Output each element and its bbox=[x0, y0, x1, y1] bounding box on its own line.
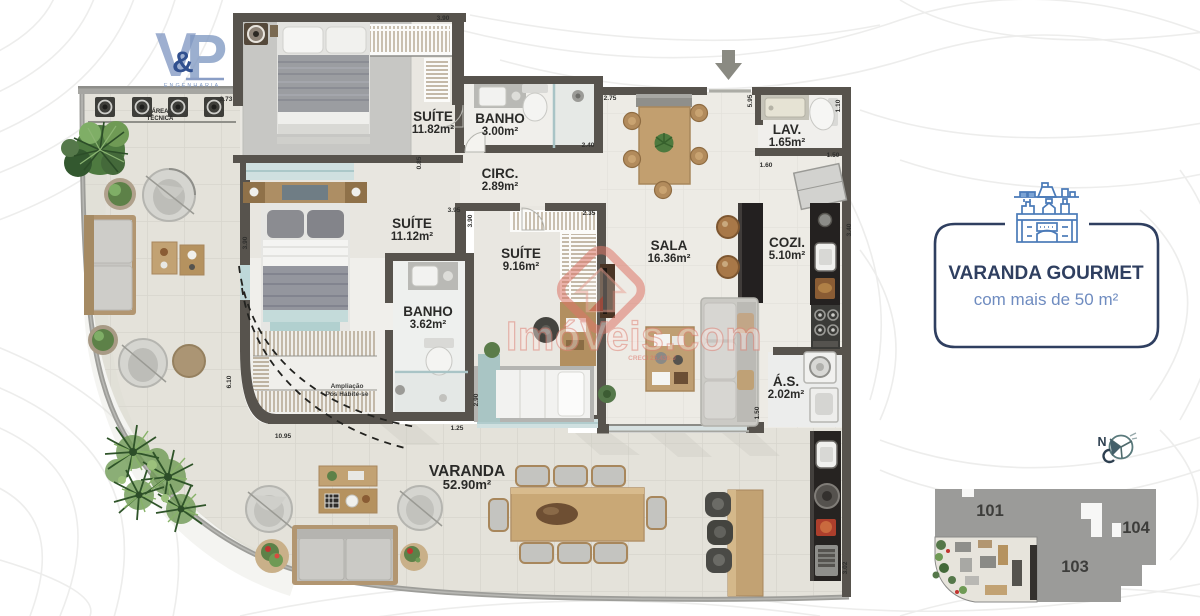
svg-text:5.95: 5.95 bbox=[747, 94, 754, 107]
svg-text:N: N bbox=[1097, 435, 1106, 449]
svg-text:1.25: 1.25 bbox=[451, 425, 464, 432]
svg-text:Ampliação: Ampliação bbox=[331, 383, 364, 390]
svg-text:2.40: 2.40 bbox=[582, 142, 595, 149]
svg-text:TÉCNICA: TÉCNICA bbox=[147, 114, 174, 122]
svg-text:101: 101 bbox=[976, 502, 1004, 520]
svg-text:11.12m²: 11.12m² bbox=[391, 231, 433, 243]
svg-text:SUÍTE: SUÍTE bbox=[413, 109, 453, 124]
svg-text:3.62m²: 3.62m² bbox=[410, 319, 447, 331]
svg-text:ÁREA: ÁREA bbox=[151, 108, 169, 115]
svg-text:Á.S.: Á.S. bbox=[773, 374, 799, 389]
svg-text:BANHO: BANHO bbox=[403, 304, 453, 319]
svg-text:3.02: 3.02 bbox=[842, 561, 849, 574]
svg-text:SUÍTE: SUÍTE bbox=[392, 216, 432, 231]
svg-text:Pós Habite-se: Pós Habite-se bbox=[326, 391, 369, 398]
svg-text:5.10m²: 5.10m² bbox=[769, 250, 806, 262]
svg-text:1.50: 1.50 bbox=[754, 406, 761, 419]
svg-text:103: 103 bbox=[1061, 558, 1089, 576]
svg-text:BANHO: BANHO bbox=[475, 111, 525, 126]
svg-text:2.02m²: 2.02m² bbox=[768, 389, 805, 401]
svg-text:&: & bbox=[172, 46, 194, 79]
svg-text:104: 104 bbox=[1122, 519, 1150, 537]
svg-text:2.90: 2.90 bbox=[473, 393, 480, 406]
svg-text:VARANDA GOURMET: VARANDA GOURMET bbox=[948, 263, 1144, 284]
svg-text:3.90: 3.90 bbox=[467, 214, 474, 227]
svg-text:3.90: 3.90 bbox=[242, 236, 249, 249]
svg-text:1.50: 1.50 bbox=[827, 152, 840, 159]
svg-text:1.65m²: 1.65m² bbox=[769, 137, 806, 149]
svg-text:3.95: 3.95 bbox=[448, 207, 461, 214]
svg-text:16.36m²: 16.36m² bbox=[648, 253, 691, 265]
svg-text:2.89m²: 2.89m² bbox=[482, 181, 519, 193]
svg-text:COZI.: COZI. bbox=[769, 235, 805, 250]
svg-text:SALA: SALA bbox=[651, 238, 688, 253]
svg-text:3.00m²: 3.00m² bbox=[482, 126, 519, 138]
svg-text:ImóVeis.com: ImóVeis.com bbox=[506, 313, 762, 359]
svg-text:2.75: 2.75 bbox=[604, 95, 617, 102]
svg-text:CIRC.: CIRC. bbox=[482, 166, 519, 181]
svg-text:3.40: 3.40 bbox=[846, 223, 853, 236]
svg-text:com mais de 50 m²: com mais de 50 m² bbox=[974, 290, 1119, 309]
svg-text:52.90m²: 52.90m² bbox=[443, 477, 492, 492]
svg-text:2.73: 2.73 bbox=[220, 96, 233, 103]
svg-text:10.95: 10.95 bbox=[275, 433, 292, 440]
svg-text:1.60: 1.60 bbox=[760, 162, 773, 169]
svg-text:9.16m²: 9.16m² bbox=[503, 261, 540, 273]
svg-text:CRECI 25.438-J: CRECI 25.438-J bbox=[628, 355, 676, 362]
svg-text:3.90: 3.90 bbox=[437, 15, 450, 22]
svg-text:2.35: 2.35 bbox=[583, 210, 596, 217]
svg-text:6.10: 6.10 bbox=[226, 375, 233, 388]
svg-text:ENGENHARIA: ENGENHARIA bbox=[164, 83, 220, 89]
svg-text:1.10: 1.10 bbox=[835, 99, 842, 112]
svg-text:LAV.: LAV. bbox=[773, 122, 802, 137]
svg-text:0.85: 0.85 bbox=[416, 156, 423, 169]
svg-text:SUÍTE: SUÍTE bbox=[501, 246, 541, 261]
svg-text:11.82m²: 11.82m² bbox=[412, 124, 454, 136]
